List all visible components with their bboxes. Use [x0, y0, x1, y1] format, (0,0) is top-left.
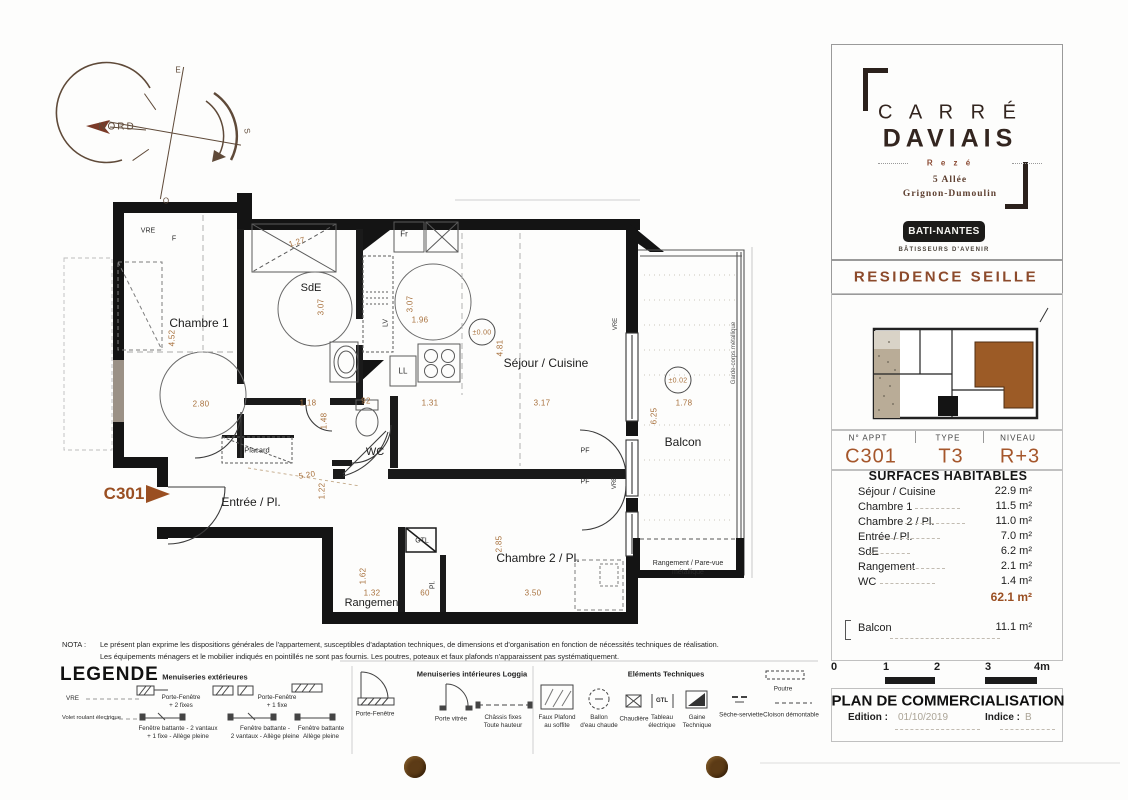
surfaces-total: 62.1 m²: [940, 590, 1032, 604]
plan-balcony: [626, 247, 752, 578]
surface-row-value: 1.4 m²: [940, 575, 1032, 587]
vre-tag-right2: VRE: [612, 477, 618, 489]
room-label-entree: Entrée / Pl.: [221, 495, 280, 509]
surface-row-value: 11.0 m²: [940, 515, 1032, 527]
legend-item-porte-vitree: Porte vitrée: [435, 716, 467, 723]
hole-punch-left: [404, 756, 426, 778]
logo-address-line2: Grignon-Dumoulin: [903, 189, 997, 199]
compass-icon: [56, 55, 252, 211]
legend-title: LEGENDE: [60, 664, 159, 686]
pare-vue-label: Rangement / Pare-vue métallique: [653, 559, 723, 577]
apartment-col-tick2: [983, 431, 984, 443]
dim-sejour-w: 3.17: [534, 399, 551, 408]
legend-vre-desc: Volet roulant électrique: [62, 715, 121, 721]
legend-item-chaudiere: Chaudière: [619, 716, 648, 723]
sheet-title: PLAN DE COMMERCIALISATION: [831, 693, 1064, 710]
vre-tag-top: VRE: [141, 228, 155, 235]
room-label-placard: Placard: [244, 446, 269, 455]
legend-item-fenetre-battante-3: Fenêtre battante Allège pleine: [298, 725, 344, 741]
logo-city-dash-left: [878, 163, 908, 164]
surface-row-label: Chambre 1: [858, 501, 912, 513]
unit-marker: C301: [104, 484, 145, 504]
dim-balcon-h: 6.25: [650, 408, 659, 425]
dim-pl-w: 60: [420, 589, 430, 598]
legend-item-faux-plafond: Faux Plafond au soffite: [538, 714, 575, 730]
appt-type-header: TYPE: [936, 434, 961, 443]
appt-level-value: R+3: [1000, 446, 1040, 469]
legend-item-porte-fenetre: Porte-Fenêtre: [356, 711, 395, 718]
legend-item-gaine: Gaine Technique: [683, 714, 712, 730]
residence-title: RESIDENCE SEILLE: [854, 269, 1038, 286]
room-label-rangement: Rangement: [345, 597, 402, 609]
vre-tag-right1: VRE: [613, 318, 619, 330]
legend-item-poutre: Poutre: [774, 686, 793, 693]
builder-name: BATI-NANTES: [908, 226, 979, 237]
surface-row-label: Chambre 2 / Pl.: [858, 516, 934, 528]
dim-chambre2-w: 3.50: [525, 589, 542, 598]
nota-label: NOTA :: [62, 640, 86, 649]
pl-tag: Pl.: [430, 581, 437, 589]
legend-vre-label: VRE: [66, 695, 79, 702]
level-marker-0: ±0.00: [473, 330, 492, 337]
surface-row-label: Séjour / Cuisine: [858, 486, 936, 498]
legend-item-tableau: Tableau électrique: [648, 714, 675, 730]
scale-tick-2: 2: [934, 661, 940, 673]
legend-tech-header: Eléments Techniques: [628, 670, 705, 679]
unit-entry-arrow: [146, 485, 170, 503]
legend-item-chassis-fixes: Châssis fixes Toute hauteur: [484, 714, 523, 730]
builder-badge: BATI-NANTES: [903, 221, 985, 242]
dim-kitchen-h: 3.07: [406, 296, 415, 313]
compass-east-label: E: [175, 66, 180, 75]
dim-sejour-h: 4.81: [496, 340, 505, 357]
legend-item-seche-serviette: Sèche-serviette: [719, 712, 763, 719]
nota-line2: Les équipements ménagers et le mobilier …: [100, 652, 619, 661]
dim-kitchen-b: 1.31: [422, 399, 439, 408]
indice-value: B: [1025, 712, 1032, 723]
dim-rangement-w: 1.32: [364, 589, 381, 598]
surface-row-label: WC: [858, 576, 876, 588]
appt-level-header: NIVEAU: [1000, 434, 1036, 443]
appt-number-header: N° APPT: [849, 434, 888, 443]
edition-value: 01/10/2019: [898, 712, 948, 723]
f-tag: F: [172, 236, 176, 243]
dim-chambre2-h: 2.85: [495, 536, 504, 553]
logo-address-line1: 5 Allée: [933, 175, 967, 185]
plan-walls: [113, 193, 664, 624]
room-label-sde: SdE: [301, 282, 322, 294]
dim-chambre1-w: 2.80: [193, 400, 210, 409]
legend-int-header: Menuiseries intérieures Loggia: [417, 670, 527, 679]
room-label-chambre1: Chambre 1: [169, 316, 228, 330]
ll-tag: LL: [399, 367, 408, 376]
pf-tag-2: PF: [581, 479, 590, 486]
dim-rangement-h: 1.62: [359, 568, 368, 585]
surface-row-value: 22.9 m²: [940, 485, 1032, 497]
legend-item-ballon: Ballon d'eau chaude: [580, 714, 618, 730]
scale-tick-0: 0: [831, 661, 837, 673]
nota-line1: Le présent plan exprime les dispositions…: [100, 640, 719, 649]
surface-row-value: 6.2 m²: [940, 545, 1032, 557]
keymap-box: [831, 293, 1063, 431]
compass-west-label: O: [163, 197, 169, 206]
surface-row-label: SdE: [858, 546, 879, 558]
surface-row-value: 7.0 m²: [940, 530, 1032, 542]
floor-plan-sheet: NORD E S O VRE F Chambre 1 SdE Fr LV LL …: [0, 0, 1128, 800]
legend-item-pf-1fixe: Porte-Fenêtre + 1 fixe: [258, 694, 297, 710]
builder-tagline: BÂTISSEURS D'AVENIR: [898, 247, 989, 253]
legend-ext-header: Menuiseries extérieures: [162, 673, 247, 682]
logo-title-line2: DAVIAIS: [883, 125, 1018, 154]
legend-gtl-icon: GTL: [656, 698, 668, 704]
dim-balcon-w: 1.78: [676, 399, 693, 408]
window-wall-segment: [113, 360, 124, 422]
scale-tick-1: 1: [883, 661, 889, 673]
surface-row-label: Rangement: [858, 561, 915, 573]
logo-bracket-bottomright-icon: [1005, 162, 1028, 209]
scale-bar-segment-1: [885, 677, 935, 684]
dim-chambre1-h: 4.52: [168, 330, 177, 347]
balcony-row-value: 11.1 m²: [940, 621, 1032, 633]
room-label-chambre2: Chambre 2 / Pl.: [496, 551, 579, 565]
compass-nord-label: NORD: [98, 122, 135, 133]
dim-entree-h: 1.22: [318, 483, 327, 500]
edition-label: Edition :: [848, 712, 888, 723]
dim-sde-h: 3.07: [317, 299, 326, 316]
logo-title-line1: C A R R É: [878, 102, 1022, 125]
surface-row-value: 11.5 m²: [940, 500, 1032, 512]
balcony-row-label: Balcon: [858, 622, 892, 634]
scale-tick-4: 4m: [1034, 661, 1050, 673]
dim-sde-w: 1.18: [300, 399, 317, 408]
dim-wc-w: 92: [361, 397, 371, 406]
legend-item-fenetre-battante-1: Fenêtre battante - 2 vantaux + 1 fixe - …: [138, 725, 217, 741]
surface-row-label: Entrée / Pl.: [858, 531, 912, 543]
scale-tick-3: 3: [985, 661, 991, 673]
surface-row-value: 2.1 m²: [940, 560, 1032, 572]
legend-item-cloison: Cloison démontable: [763, 712, 819, 719]
logo-city-dash-right: [1012, 163, 1042, 164]
appt-number-value: C301: [845, 446, 897, 469]
apartment-col-tick1: [915, 431, 916, 443]
garde-corps-label: Garde-corps métallique: [731, 322, 737, 384]
hole-punch-right: [706, 756, 728, 778]
plan-guides: [64, 200, 640, 486]
room-label-wc: WC: [366, 446, 384, 458]
dim-wc-h: 1.48: [320, 413, 329, 430]
scale-bar-segment-2: [985, 677, 1037, 684]
level-marker-1: ±0.02: [669, 378, 688, 385]
logo-city: R e z é: [927, 159, 973, 168]
appt-type-value: T3: [938, 446, 963, 469]
legend-item-pf-2fixes: Porte-Fenêtre + 2 fixes: [162, 694, 201, 710]
dim-kitchen-w: 1.96: [412, 316, 429, 325]
fr-tag: Fr: [400, 230, 408, 239]
room-label-balcon: Balcon: [665, 435, 702, 449]
room-label-sejour: Séjour / Cuisine: [504, 356, 589, 370]
indice-label: Indice :: [985, 712, 1020, 723]
pf-tag-1: PF: [581, 448, 590, 455]
legend-item-fenetre-battante-2: Fenêtre battante - 2 vantaux - Allège pl…: [231, 725, 300, 741]
balcony-bracket-icon: [845, 620, 851, 640]
lv-tag: LV: [383, 319, 390, 327]
surfaces-title: SURFACES HABITABLES: [869, 469, 1028, 483]
gtl-tag: GTL: [415, 538, 429, 545]
